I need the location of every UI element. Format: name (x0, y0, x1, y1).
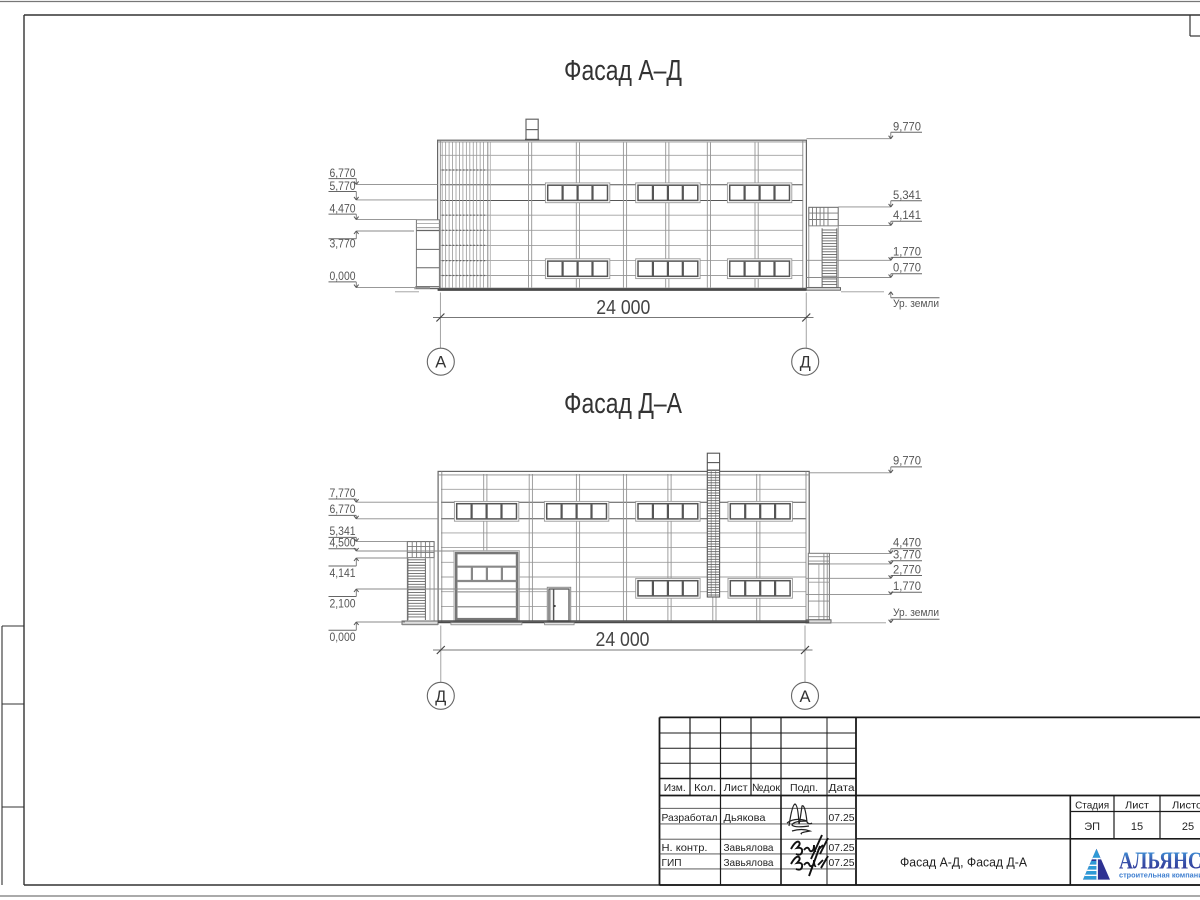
svg-text:Дата: Дата (829, 782, 855, 794)
svg-text:Ур. земли: Ур. земли (893, 607, 939, 619)
svg-text:25: 25 (1182, 821, 1194, 833)
svg-text:№док: №док (752, 782, 780, 794)
svg-text:Лист: Лист (724, 782, 748, 794)
svg-text:7,770: 7,770 (330, 488, 356, 500)
svg-text:Фасад Д–А: Фасад Д–А (564, 388, 683, 420)
svg-text:9,770: 9,770 (893, 456, 921, 468)
svg-text:4,500: 4,500 (330, 537, 356, 549)
svg-text:Дьякова: Дьякова (724, 812, 766, 824)
svg-text:0,770: 0,770 (893, 263, 921, 275)
svg-text:15: 15 (1131, 821, 1143, 833)
svg-text:6,770: 6,770 (330, 504, 356, 516)
svg-text:07.25: 07.25 (829, 812, 855, 824)
svg-text:Подп.: Подп. (790, 782, 818, 794)
svg-text:6,770: 6,770 (330, 168, 356, 180)
svg-text:4,470: 4,470 (893, 538, 921, 550)
svg-text:24 000: 24 000 (596, 296, 650, 319)
svg-text:Завьялова: Завьялова (724, 842, 774, 854)
svg-text:Разработал: Разработал (662, 812, 718, 824)
svg-text:4,141: 4,141 (893, 210, 921, 222)
svg-text:3,770: 3,770 (893, 550, 921, 562)
svg-text:4,141: 4,141 (330, 568, 356, 580)
svg-text:2,100: 2,100 (330, 598, 356, 610)
svg-text:3,770: 3,770 (330, 239, 356, 251)
svg-text:А: А (435, 353, 447, 372)
svg-text:2,770: 2,770 (893, 564, 921, 576)
svg-text:1,770: 1,770 (893, 581, 921, 593)
svg-text:ГИП: ГИП (662, 857, 682, 869)
svg-text:А: А (800, 687, 812, 706)
svg-text:Д: Д (800, 353, 811, 372)
svg-text:5,341: 5,341 (330, 526, 356, 538)
svg-text:АЛЬЯНС: АЛЬЯНС (1119, 849, 1200, 875)
svg-text:строительная компания: строительная компания (1119, 873, 1200, 880)
svg-text:Изм.: Изм. (664, 782, 686, 794)
svg-text:07.25: 07.25 (829, 842, 855, 854)
svg-text:Стадия: Стадия (1075, 799, 1109, 811)
svg-text:Фасад А-Д, Фасад Д-А: Фасад А-Д, Фасад Д-А (900, 855, 1027, 870)
svg-text:Н. контр.: Н. контр. (662, 842, 708, 854)
svg-text:1,770: 1,770 (893, 246, 921, 258)
svg-text:0,000: 0,000 (330, 632, 356, 644)
svg-text:Ур. земли: Ур. земли (893, 298, 939, 310)
svg-text:Лист: Лист (1125, 799, 1149, 811)
svg-text:Кол.: Кол. (694, 782, 716, 794)
svg-text:ЭП: ЭП (1084, 821, 1100, 833)
svg-text:5,341: 5,341 (893, 190, 921, 202)
svg-text:0,000: 0,000 (330, 271, 356, 283)
svg-text:07.25: 07.25 (829, 857, 855, 869)
svg-text:24 000: 24 000 (596, 628, 650, 651)
svg-text:Листов: Листов (1172, 799, 1200, 811)
svg-text:Д: Д (435, 687, 446, 706)
svg-text:Завьялова: Завьялова (724, 857, 774, 869)
svg-text:9,770: 9,770 (893, 121, 921, 133)
svg-text:4,470: 4,470 (330, 203, 356, 215)
svg-text:Фасад А–Д: Фасад А–Д (564, 55, 682, 87)
